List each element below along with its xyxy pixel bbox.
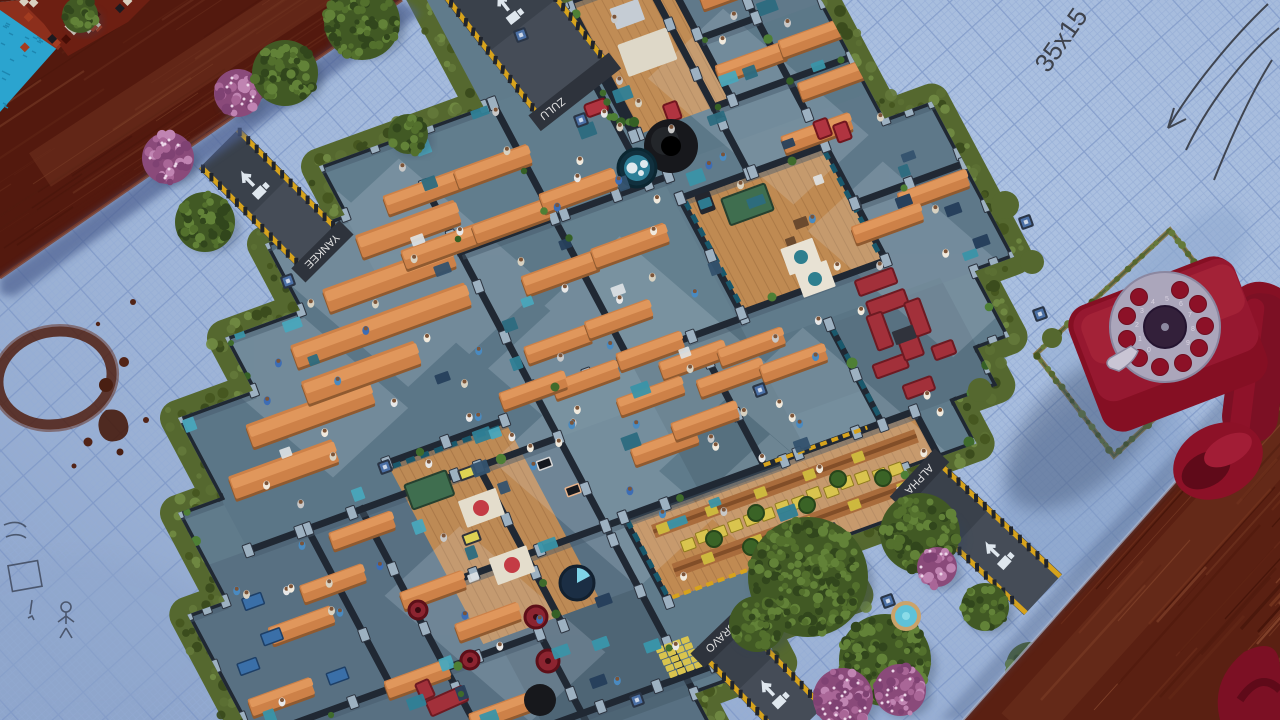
svg-text:3: 3 xyxy=(1140,308,1144,315)
svg-text:6: 6 xyxy=(1179,301,1183,308)
svg-text:4: 4 xyxy=(1151,299,1155,306)
svg-text:0: 0 xyxy=(1147,347,1151,354)
svg-text:7: 7 xyxy=(1188,312,1192,319)
svg-text:8: 8 xyxy=(1191,326,1195,333)
svg-text:5: 5 xyxy=(1165,296,1169,303)
svg-text:9: 9 xyxy=(1186,340,1190,347)
svg-text:2: 2 xyxy=(1135,322,1139,329)
svg-text:1: 1 xyxy=(1138,336,1142,343)
